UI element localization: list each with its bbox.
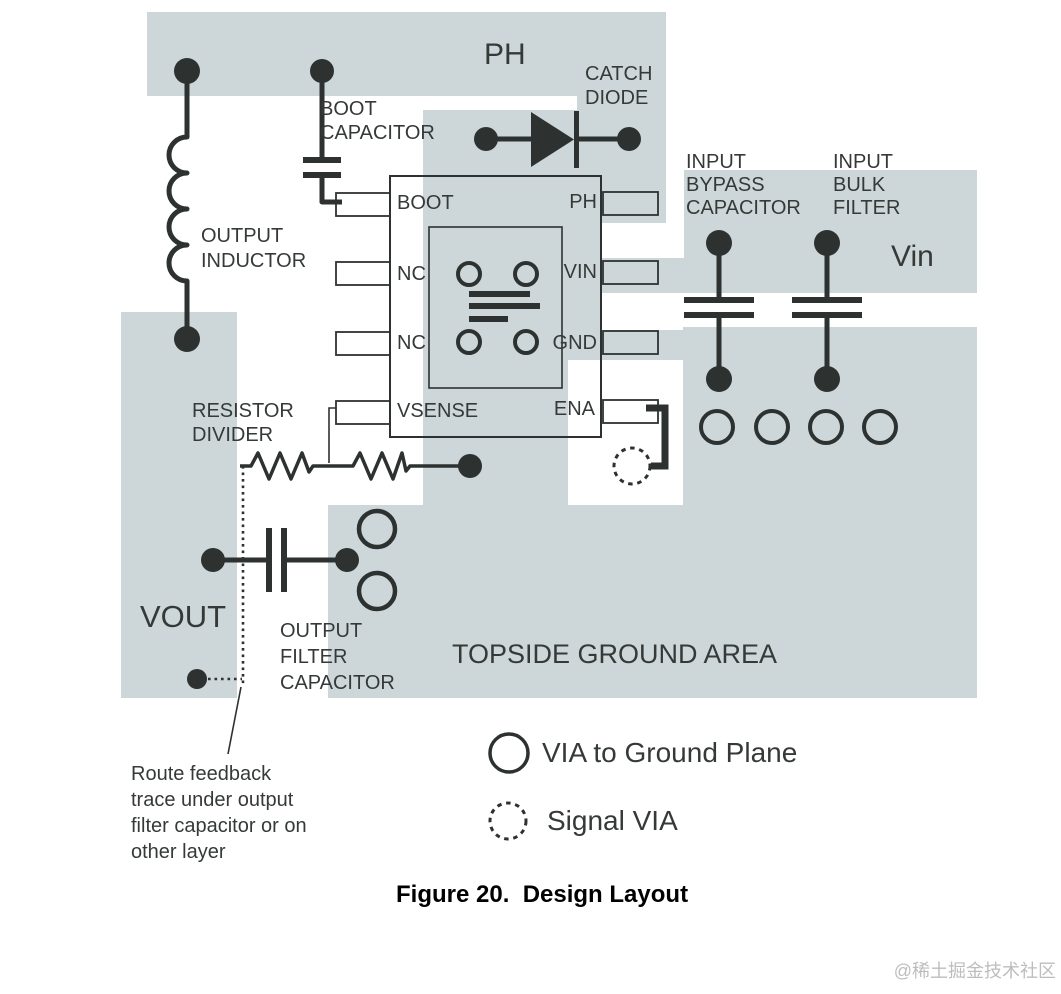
pad-dot: [814, 230, 840, 256]
nc-pad-2: [336, 332, 390, 355]
boot-capacitor-bottom-wire: [322, 177, 342, 202]
ic-pin-label-vin: VIN: [500, 262, 597, 282]
ic-pin-label-nc1: NC: [397, 264, 426, 284]
bypass-capacitor-plates: [684, 300, 754, 315]
pad-dot: [706, 366, 732, 392]
output-inductor-symbol: [169, 78, 187, 330]
resistor-divider-label: RESISTOR DIVIDER: [192, 399, 294, 447]
ph-node-label: PH: [484, 40, 526, 70]
boot-pad: [336, 193, 390, 216]
pad-dot: [174, 58, 200, 84]
output-inductor-label: OUTPUT INDUCTOR: [201, 224, 306, 274]
vout-node-label: VOUT: [140, 602, 226, 632]
output-filter-capacitor-label: OUTPUT FILTER CAPACITOR: [280, 618, 395, 696]
pad-dot: [458, 454, 482, 478]
output-filter-capacitor-plates: [269, 528, 284, 592]
route-feedback-note: Route feedback trace under output filter…: [131, 761, 307, 865]
legend-symbols: [490, 734, 528, 839]
input-bulk-filter-label: INPUT BULK FILTER: [833, 151, 900, 220]
watermark: @稀土掘金技术社区: [894, 961, 1056, 981]
vin-pin-pour: [598, 258, 684, 293]
pad-dot: [201, 548, 225, 572]
pad-dot: [474, 127, 498, 151]
boot-capacitor-label: BOOT CAPACITOR: [320, 97, 435, 145]
topside-ground-pour: [328, 505, 977, 698]
vout-pour: [121, 312, 237, 698]
pad-dot: [814, 366, 840, 392]
legend-ground-via-icon: [490, 734, 528, 772]
input-bypass-capacitor-label: INPUT BYPASS CAPACITOR: [686, 151, 801, 220]
vin-node-label: Vin: [891, 242, 934, 272]
topside-ground-area-label: TOPSIDE GROUND AREA: [452, 641, 777, 668]
signal-via: [614, 448, 650, 484]
ic-pin-label-boot: BOOT: [397, 193, 454, 213]
legend-signal-via-label: Signal VIA: [547, 807, 678, 835]
catch-diode-label: CATCH DIODE: [585, 62, 652, 110]
design-layout-figure: PH CATCH DIODE BOOT CAPACITOR OUTPUT IND…: [0, 0, 1061, 994]
gnd-pin-pour: [595, 330, 683, 360]
ph-vertical-pour: [423, 110, 600, 360]
pad-dot: [174, 326, 200, 352]
ic-pin-label-ena: ENA: [500, 399, 595, 419]
ph-vertical-pour-lower: [423, 360, 568, 505]
legend-ground-via-label: VIA to Ground Plane: [542, 739, 797, 767]
vsense-tap-wire: [329, 408, 336, 463]
ic-pin-label-gnd: GND: [500, 333, 597, 353]
figure-caption: Figure 20. Design Layout: [396, 883, 688, 907]
bulk-capacitor-plates: [792, 300, 862, 315]
pad-dot: [617, 127, 641, 151]
vsense-pad: [336, 401, 390, 424]
ic-pin-label-vsense: VSENSE: [397, 401, 478, 421]
pad-dot: [335, 548, 359, 572]
copper-areas: [121, 12, 977, 698]
pad-dot: [706, 230, 732, 256]
legend-signal-via-icon: [490, 803, 526, 839]
nc-pad-1: [336, 262, 390, 285]
pad-dot: [187, 669, 207, 689]
pad-dot: [310, 59, 334, 83]
ic-pin-label-ph: PH: [500, 192, 597, 212]
boot-capacitor-plates: [303, 160, 341, 175]
ic-pin-label-nc2: NC: [397, 333, 426, 353]
